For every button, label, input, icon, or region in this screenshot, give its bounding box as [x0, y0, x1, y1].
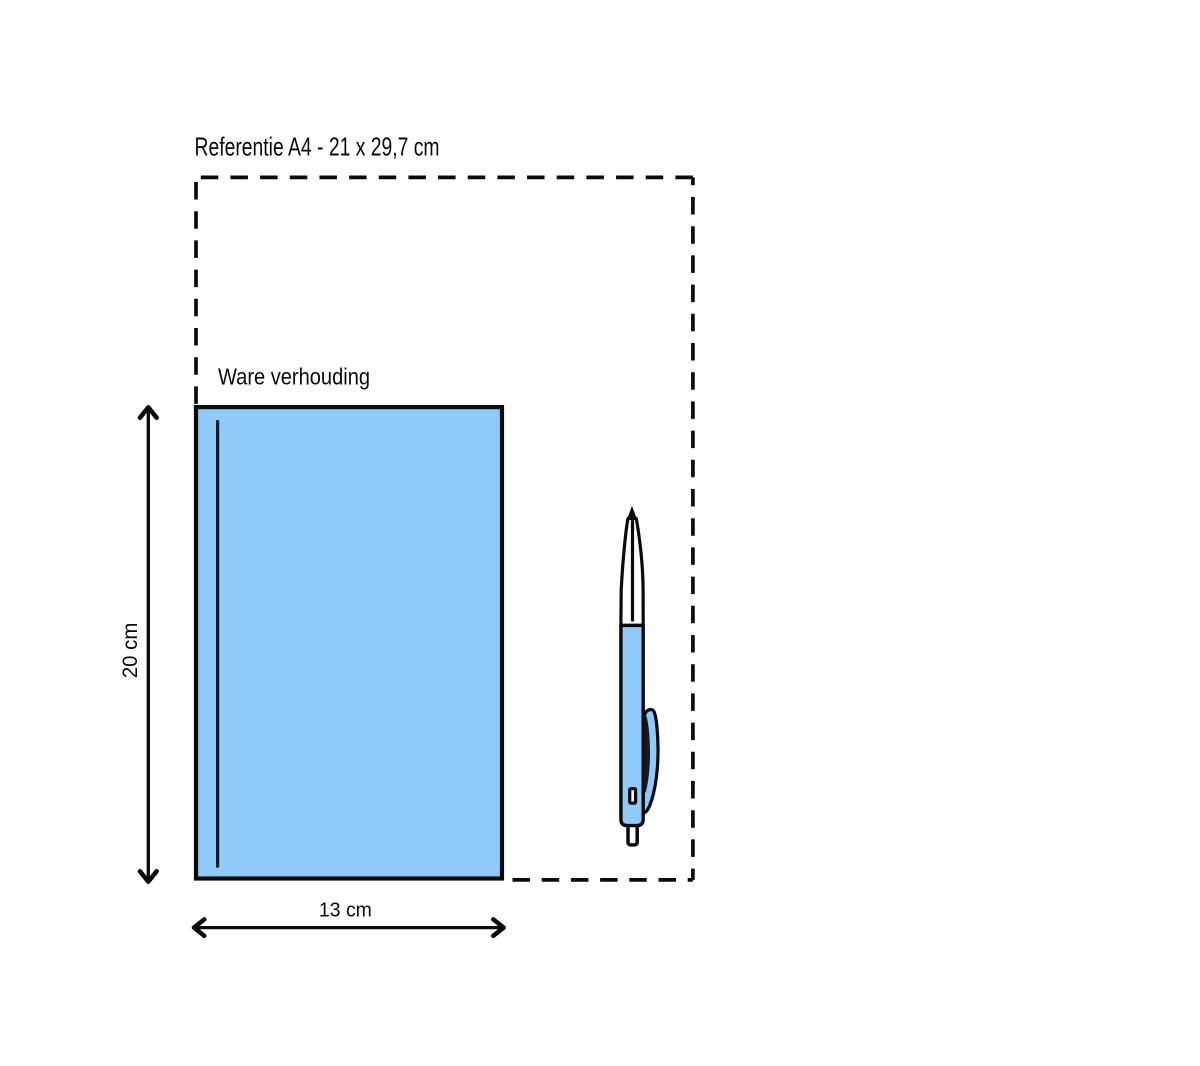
svg-text:Referentie A4 - 21 x 29,7 cm: Referentie A4 - 21 x 29,7 cm — [195, 133, 440, 161]
svg-text:13 cm: 13 cm — [319, 899, 372, 922]
svg-text:20 cm: 20 cm — [117, 623, 142, 679]
svg-text:Ware verhouding: Ware verhouding — [218, 363, 370, 389]
